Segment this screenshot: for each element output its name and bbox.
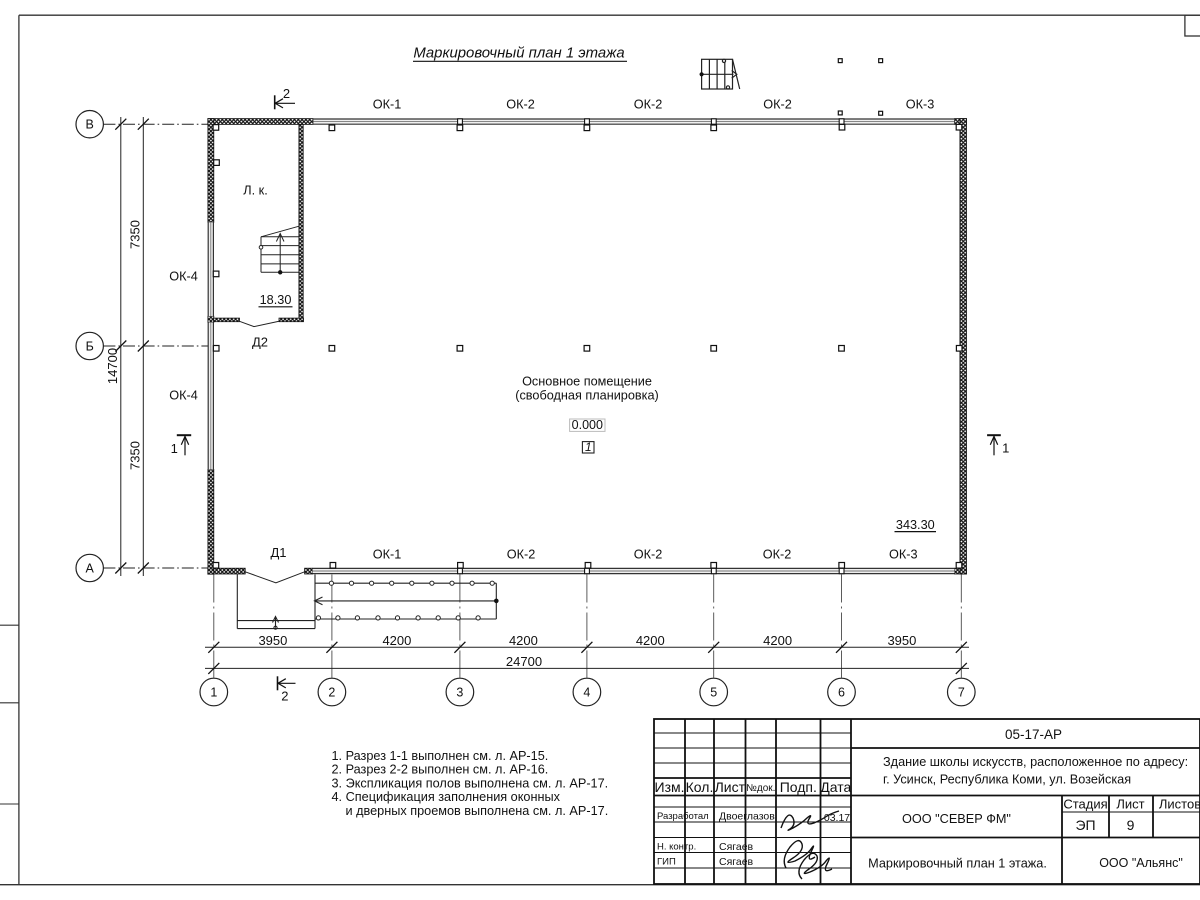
svg-text:ОК-3: ОК-3 (906, 98, 935, 112)
svg-text:9: 9 (1127, 817, 1135, 833)
svg-text:Сягаев: Сягаев (719, 856, 754, 868)
svg-text:6: 6 (838, 685, 845, 699)
svg-text:ОК-2: ОК-2 (507, 548, 536, 562)
svg-text:0.000: 0.000 (572, 418, 603, 432)
svg-text:Маркировочный план 1 этажа: Маркировочный план 1 этажа (413, 46, 624, 62)
svg-text:03.17: 03.17 (824, 812, 850, 824)
svg-text:Двоеглазов: Двоеглазов (719, 811, 775, 823)
svg-text:1: 1 (1002, 441, 1009, 456)
svg-text:и дверных проемов выполнена см: и дверных проемов выполнена см. л. АР-17… (346, 804, 609, 818)
svg-text:1: 1 (171, 441, 178, 456)
svg-text:ОК-2: ОК-2 (506, 98, 535, 112)
svg-text:Лист: Лист (1116, 797, 1144, 812)
svg-text:Изм.: Изм. (655, 779, 685, 795)
svg-text:4200: 4200 (636, 633, 665, 648)
svg-text:Разработал: Разработал (657, 811, 709, 822)
svg-text:ООО "Альянс": ООО "Альянс" (1099, 856, 1183, 870)
svg-text:2: 2 (283, 86, 290, 101)
svg-text:Сягаев: Сягаев (719, 841, 754, 853)
svg-text:(свободная планировка): (свободная планировка) (515, 389, 659, 403)
svg-text:Кол.: Кол. (686, 779, 714, 795)
svg-text:18.30: 18.30 (260, 293, 292, 307)
svg-text:2: 2 (281, 689, 288, 704)
svg-text:3: 3 (456, 685, 463, 699)
svg-text:1: 1 (210, 685, 217, 699)
svg-text:ОК-4: ОК-4 (169, 389, 198, 403)
svg-text:Маркировочный план 1 этажа.: Маркировочный план 1 этажа. (868, 857, 1047, 871)
svg-text:4: 4 (583, 685, 590, 699)
svg-text:ОК-1: ОК-1 (373, 98, 402, 112)
svg-text:Подп.: Подп. (780, 779, 817, 795)
svg-text:7350: 7350 (128, 220, 143, 249)
svg-text:Б: Б (86, 339, 94, 353)
svg-text:Листов: Листов (1159, 797, 1200, 812)
svg-text:№док.: №док. (746, 783, 775, 794)
svg-text:ОК-3: ОК-3 (889, 548, 918, 562)
svg-text:343.30: 343.30 (896, 518, 935, 532)
svg-text:4200: 4200 (763, 633, 792, 648)
svg-text:А: А (86, 561, 95, 575)
svg-text:7: 7 (958, 685, 965, 699)
svg-text:Н. контр.: Н. контр. (657, 842, 696, 853)
svg-text:ОК-2: ОК-2 (634, 98, 663, 112)
svg-text:4200: 4200 (382, 633, 411, 648)
svg-text:Дата: Дата (820, 779, 851, 795)
svg-text:ЭП: ЭП (1075, 817, 1095, 833)
svg-text:ОК-2: ОК-2 (634, 548, 663, 562)
svg-text:24700: 24700 (506, 654, 542, 669)
svg-text:Основное помещение: Основное помещение (522, 375, 652, 389)
svg-text:3. Экспликация полов выполнена: 3. Экспликация полов выполнена см. л. АР… (332, 776, 609, 790)
svg-text:2. Разрез 2-2 выполнен см. л.: 2. Разрез 2-2 выполнен см. л. АР-16. (332, 763, 549, 777)
svg-text:ОК-2: ОК-2 (763, 548, 792, 562)
svg-text:1: 1 (585, 440, 592, 454)
svg-text:3950: 3950 (258, 633, 287, 648)
svg-text:Лист: Лист (715, 779, 746, 795)
svg-text:4. Спецификация заполнения око: 4. Спецификация заполнения оконных (332, 790, 561, 804)
svg-text:ООО "СЕВЕР ФМ": ООО "СЕВЕР ФМ" (902, 812, 1011, 826)
svg-text:4200: 4200 (509, 633, 538, 648)
svg-text:Л. к.: Л. к. (243, 184, 267, 198)
svg-text:В: В (86, 118, 94, 132)
svg-text:5: 5 (710, 685, 717, 699)
svg-text:Стадия: Стадия (1063, 797, 1107, 812)
svg-text:1. Разрез 1-1 выполнен см. л.: 1. Разрез 1-1 выполнен см. л. АР-15. (332, 749, 549, 763)
svg-text:05-17-АР: 05-17-АР (1005, 727, 1062, 742)
svg-text:7350: 7350 (128, 441, 143, 470)
svg-text:ОК-4: ОК-4 (169, 270, 198, 284)
svg-text:Д1: Д1 (270, 545, 286, 560)
svg-text:г. Усинск, Республика Коми, ул: г. Усинск, Республика Коми, ул. Возейска… (883, 773, 1131, 787)
svg-text:2: 2 (328, 685, 335, 699)
svg-text:ГИП: ГИП (657, 857, 676, 868)
svg-text:14700: 14700 (105, 348, 120, 384)
svg-text:Д2: Д2 (252, 335, 268, 350)
svg-text:ОК-1: ОК-1 (373, 548, 402, 562)
svg-text:3950: 3950 (887, 633, 916, 648)
svg-text:ОК-2: ОК-2 (763, 98, 792, 112)
svg-text:Здание школы искусств, располо: Здание школы искусств, расположенное по … (883, 755, 1188, 769)
